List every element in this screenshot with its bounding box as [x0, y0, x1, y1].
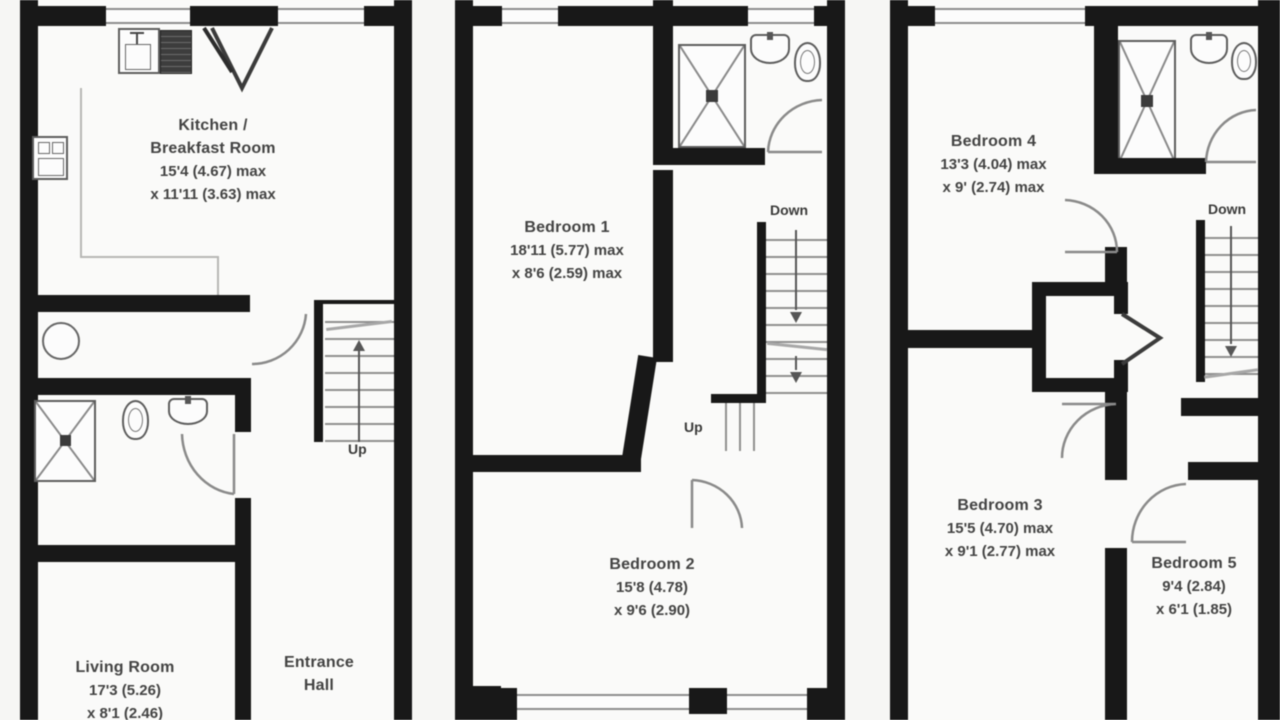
wall [814, 6, 845, 26]
wall [653, 148, 765, 165]
wall [827, 0, 845, 720]
room-dimensions: x 8'1 (2.46) [30, 702, 220, 720]
window [278, 8, 364, 24]
round-table-icon [42, 322, 80, 360]
window [935, 8, 1085, 24]
shower-tray-icon [678, 44, 746, 148]
door-arc [250, 312, 308, 366]
stair-arrow [358, 350, 360, 442]
stairs-down-label: Down [770, 202, 808, 218]
shower-tray-icon [1118, 40, 1176, 162]
wall [689, 688, 727, 714]
room-dimensions: x 9'6 (2.90) [544, 599, 760, 622]
room-name: Bedroom 3 [892, 494, 1108, 517]
wall [20, 295, 250, 312]
wall [235, 498, 251, 720]
room-name: Hall [256, 674, 382, 697]
wall [455, 0, 473, 700]
room-name: Entrance [256, 651, 382, 674]
wall [1118, 158, 1206, 174]
room-name: Breakfast Room [93, 137, 333, 160]
stair-wall [314, 300, 394, 304]
stair-wall [1196, 220, 1205, 382]
wall [1105, 416, 1127, 480]
wall [890, 330, 1035, 348]
room-dimensions: 9'4 (2.84) [1120, 575, 1268, 598]
stair-wall [314, 300, 323, 442]
room-dimensions: x 11'11 (3.63) max [93, 183, 333, 206]
stove-icon [160, 30, 192, 74]
arrow-down-icon [790, 312, 802, 323]
room-name: Bedroom 5 [1120, 552, 1268, 575]
door-arc [1204, 108, 1258, 164]
room-label-bedroom1: Bedroom 1 18'11 (5.77) max x 8'6 (2.59) … [458, 216, 676, 285]
arrow-up-icon [353, 340, 365, 351]
door-arc [766, 98, 824, 154]
room-label-bedroom3: Bedroom 3 15'5 (4.70) max x 9'1 (2.77) m… [892, 494, 1108, 563]
floor-edge-line [80, 256, 219, 258]
room-name: Bedroom 4 [886, 130, 1101, 153]
wall [473, 455, 641, 472]
toilet-icon [794, 42, 821, 82]
room-dimensions: 17'3 (5.26) [30, 679, 220, 702]
stairs-up-label: Up [684, 419, 703, 435]
door-arc [690, 478, 744, 530]
wall [364, 6, 412, 26]
window [748, 8, 814, 24]
wall [20, 545, 236, 562]
window [517, 694, 689, 710]
room-label-bedroom2: Bedroom 2 15'8 (4.78) x 9'6 (2.90) [544, 553, 760, 622]
wall [1181, 398, 1258, 416]
wall [807, 688, 845, 720]
room-dimensions: 15'5 (4.70) max [892, 517, 1108, 540]
basin-icon [168, 398, 208, 425]
wall [890, 6, 935, 26]
room-dimensions: x 8'6 (2.59) max [458, 262, 676, 285]
room-dimensions: 15'4 (4.67) max [93, 160, 333, 183]
arrow-down-icon [1225, 346, 1237, 357]
floor-plan: Kitchen / Breakfast Room 15'4 (4.67) max… [0, 0, 1280, 720]
wall [455, 6, 502, 26]
wall [1188, 462, 1258, 480]
wall [20, 378, 235, 395]
room-dimensions: x 9'1 (2.77) max [892, 540, 1108, 563]
basin-icon [750, 34, 790, 64]
stair-wall [711, 394, 766, 403]
door-arc [1063, 198, 1119, 254]
room-label-kitchen: Kitchen / Breakfast Room 15'4 (4.67) max… [93, 114, 333, 206]
wall [653, 0, 673, 152]
stairs-down-label: Down [1208, 201, 1246, 217]
cupboard-wall [1032, 282, 1046, 392]
room-dimensions: 13'3 (4.04) max [886, 153, 1101, 176]
counter-edge [190, 26, 236, 76]
stair-arrow [1230, 226, 1232, 344]
room-name: Bedroom 1 [458, 216, 676, 239]
room-label-living: Living Room 17'3 (5.26) x 8'1 (2.46) [30, 656, 220, 720]
toilet-icon [1231, 42, 1257, 80]
stair-wall [757, 222, 766, 400]
door-arc [1130, 482, 1188, 544]
room-label-bedroom4: Bedroom 4 13'3 (4.04) max x 9' (2.74) ma… [886, 130, 1101, 199]
room-label-hall: Entrance Hall [256, 651, 382, 697]
cupboard-door-icon [1118, 310, 1164, 368]
room-dimensions: 18'11 (5.77) max [458, 239, 676, 262]
toilet-icon [122, 400, 149, 440]
arrow-down-icon [790, 372, 802, 383]
wall [20, 6, 106, 26]
kitchen-sink [118, 28, 160, 74]
window [727, 694, 807, 710]
basin-icon [1190, 34, 1228, 64]
room-dimensions: 15'8 (4.78) [544, 576, 760, 599]
shower-tray-icon [34, 400, 96, 482]
wall [394, 0, 412, 720]
wall [190, 6, 278, 26]
room-dimensions: x 6'1 (1.85) [1120, 598, 1268, 621]
floor-edge-line [217, 256, 219, 296]
staircase [713, 403, 766, 451]
wall [235, 378, 251, 432]
stair-arrow [795, 356, 797, 370]
room-name: Bedroom 2 [544, 553, 760, 576]
door-arc [180, 432, 236, 496]
window [502, 8, 558, 24]
wall [455, 688, 517, 720]
wall [20, 0, 38, 720]
room-dimensions: x 9' (2.74) max [886, 176, 1101, 199]
room-name: Kitchen / [93, 114, 333, 137]
room-name: Living Room [30, 656, 220, 679]
room-label-bedroom5: Bedroom 5 9'4 (2.84) x 6'1 (1.85) [1120, 552, 1268, 621]
stairs-up-label: Up [348, 441, 367, 457]
stair-arrow [795, 230, 797, 310]
boiler-icon [32, 136, 68, 180]
window [106, 8, 190, 24]
floor-edge-line [80, 88, 82, 258]
wall [890, 0, 908, 720]
